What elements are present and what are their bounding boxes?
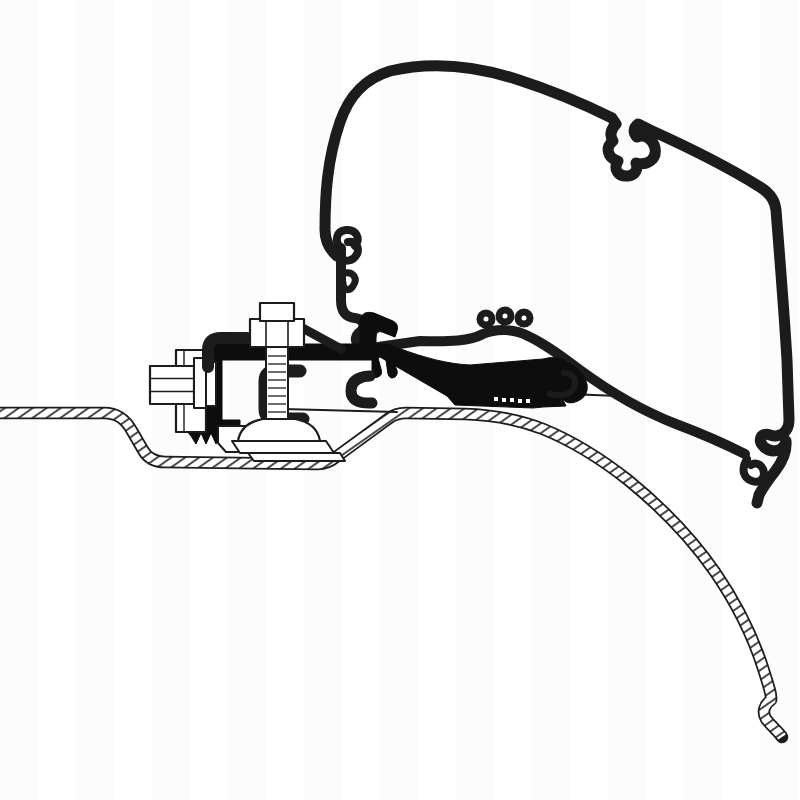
diagram-stage <box>0 0 800 800</box>
roof-sheet <box>0 413 782 737</box>
foot-plate <box>248 453 345 461</box>
diagram-canvas <box>0 0 800 800</box>
foot-plate <box>232 441 334 453</box>
hex-bolt-head <box>150 366 194 404</box>
bolt-square-head <box>260 303 294 321</box>
vertical-bolt <box>250 303 304 424</box>
rail-interlock <box>337 230 358 261</box>
dome-washer <box>232 419 345 461</box>
case-bottom-hooks <box>744 459 764 482</box>
roof-edge-line <box>283 409 397 412</box>
rail-antler-ribs <box>480 310 530 325</box>
hex-nut <box>250 319 304 347</box>
